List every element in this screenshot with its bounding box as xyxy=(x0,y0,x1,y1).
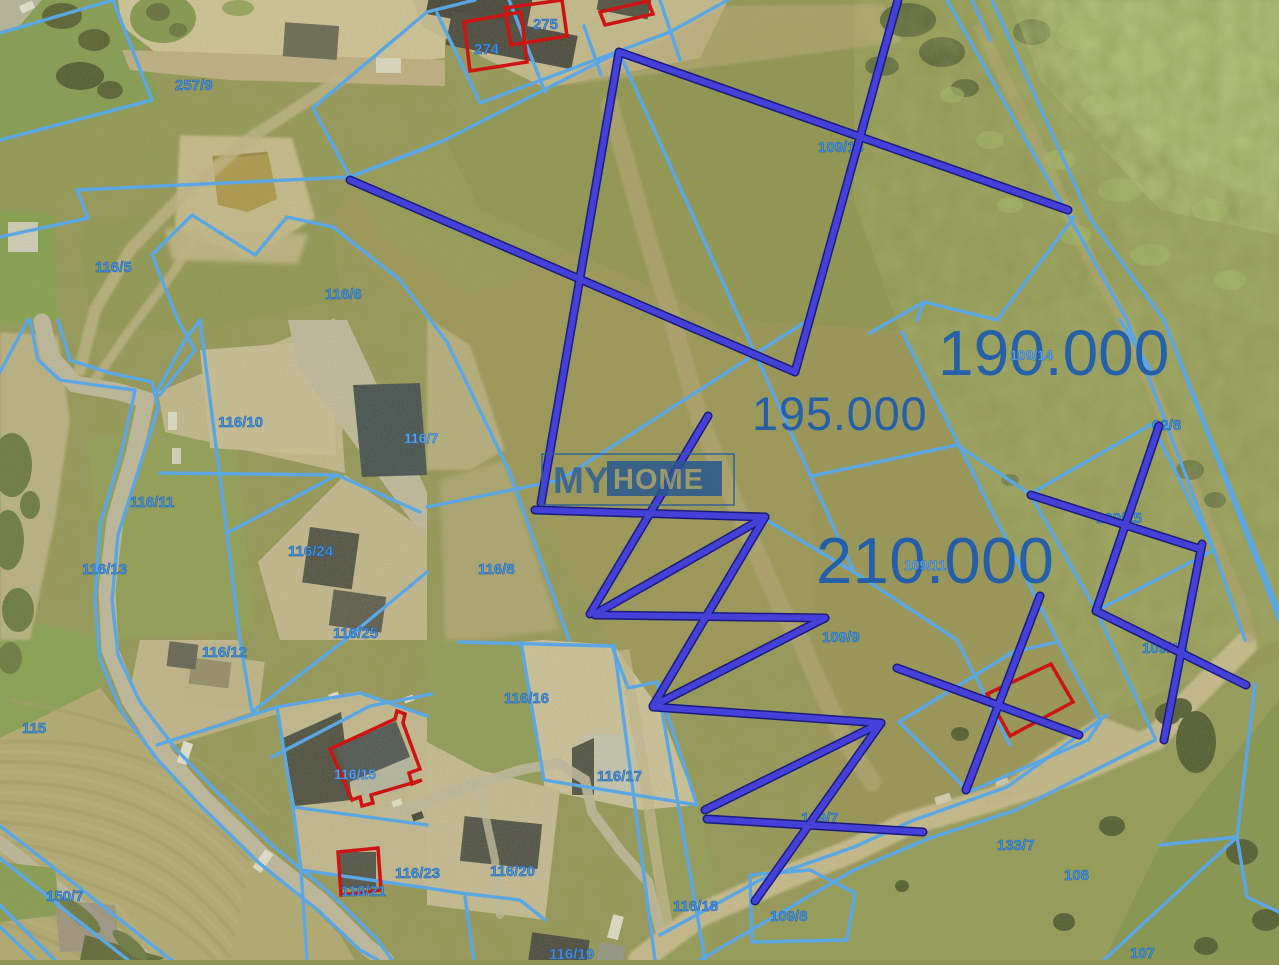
svg-text:115: 115 xyxy=(22,720,46,737)
svg-text:190.000: 190.000 xyxy=(938,317,1169,389)
svg-text:109/9: 109/9 xyxy=(822,629,860,646)
svg-text:HOME: HOME xyxy=(613,464,704,496)
svg-text:257/9: 257/9 xyxy=(175,77,213,94)
svg-text:150/7: 150/7 xyxy=(46,888,84,905)
svg-text:275: 275 xyxy=(533,16,558,33)
svg-text:133/7: 133/7 xyxy=(997,837,1035,854)
svg-text:195.000: 195.000 xyxy=(752,387,928,440)
svg-text:116/15: 116/15 xyxy=(334,766,376,782)
svg-text:116/10: 116/10 xyxy=(218,414,263,431)
svg-text:116/20: 116/20 xyxy=(490,863,535,880)
svg-text:116/25: 116/25 xyxy=(333,625,378,642)
svg-text:116/17: 116/17 xyxy=(597,768,642,785)
svg-text:116/7: 116/7 xyxy=(404,430,438,446)
svg-text:116/21: 116/21 xyxy=(341,883,386,900)
svg-text:274: 274 xyxy=(474,41,500,58)
svg-text:116/13: 116/13 xyxy=(82,561,127,578)
svg-text:MY: MY xyxy=(553,460,609,501)
svg-text:109/11: 109/11 xyxy=(904,557,946,573)
svg-text:109/14: 109/14 xyxy=(1010,347,1053,363)
svg-text:116/12: 116/12 xyxy=(202,644,247,661)
svg-text:116/11: 116/11 xyxy=(130,494,174,511)
svg-text:108: 108 xyxy=(1064,867,1089,884)
svg-text:116/6: 116/6 xyxy=(325,286,362,303)
svg-text:116/19: 116/19 xyxy=(549,946,594,960)
svg-text:116/18: 116/18 xyxy=(673,898,718,915)
svg-text:109/8: 109/8 xyxy=(770,908,808,925)
svg-text:107: 107 xyxy=(1130,945,1155,960)
svg-text:116/23: 116/23 xyxy=(395,865,440,882)
svg-text:116/24: 116/24 xyxy=(288,543,334,560)
svg-text:116/16: 116/16 xyxy=(504,690,549,707)
svg-text:116/8: 116/8 xyxy=(478,561,515,578)
svg-text:116/5: 116/5 xyxy=(95,259,132,276)
